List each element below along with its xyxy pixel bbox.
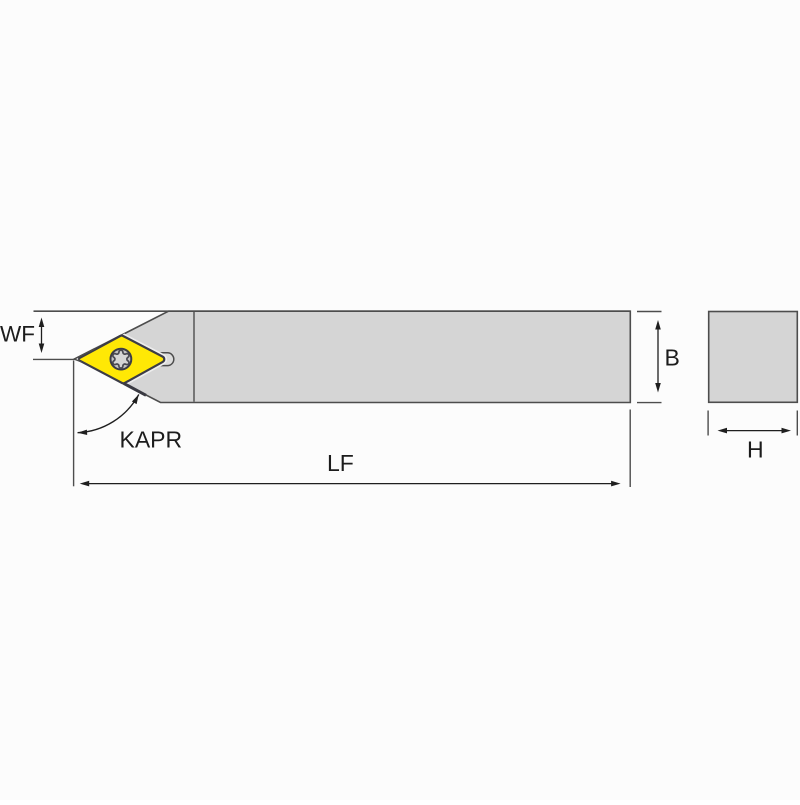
svg-text:WF: WF <box>0 322 35 347</box>
svg-text:LF: LF <box>327 450 354 476</box>
svg-text:KAPR: KAPR <box>120 427 183 453</box>
svg-text:H: H <box>747 437 764 463</box>
svg-text:B: B <box>665 345 680 371</box>
